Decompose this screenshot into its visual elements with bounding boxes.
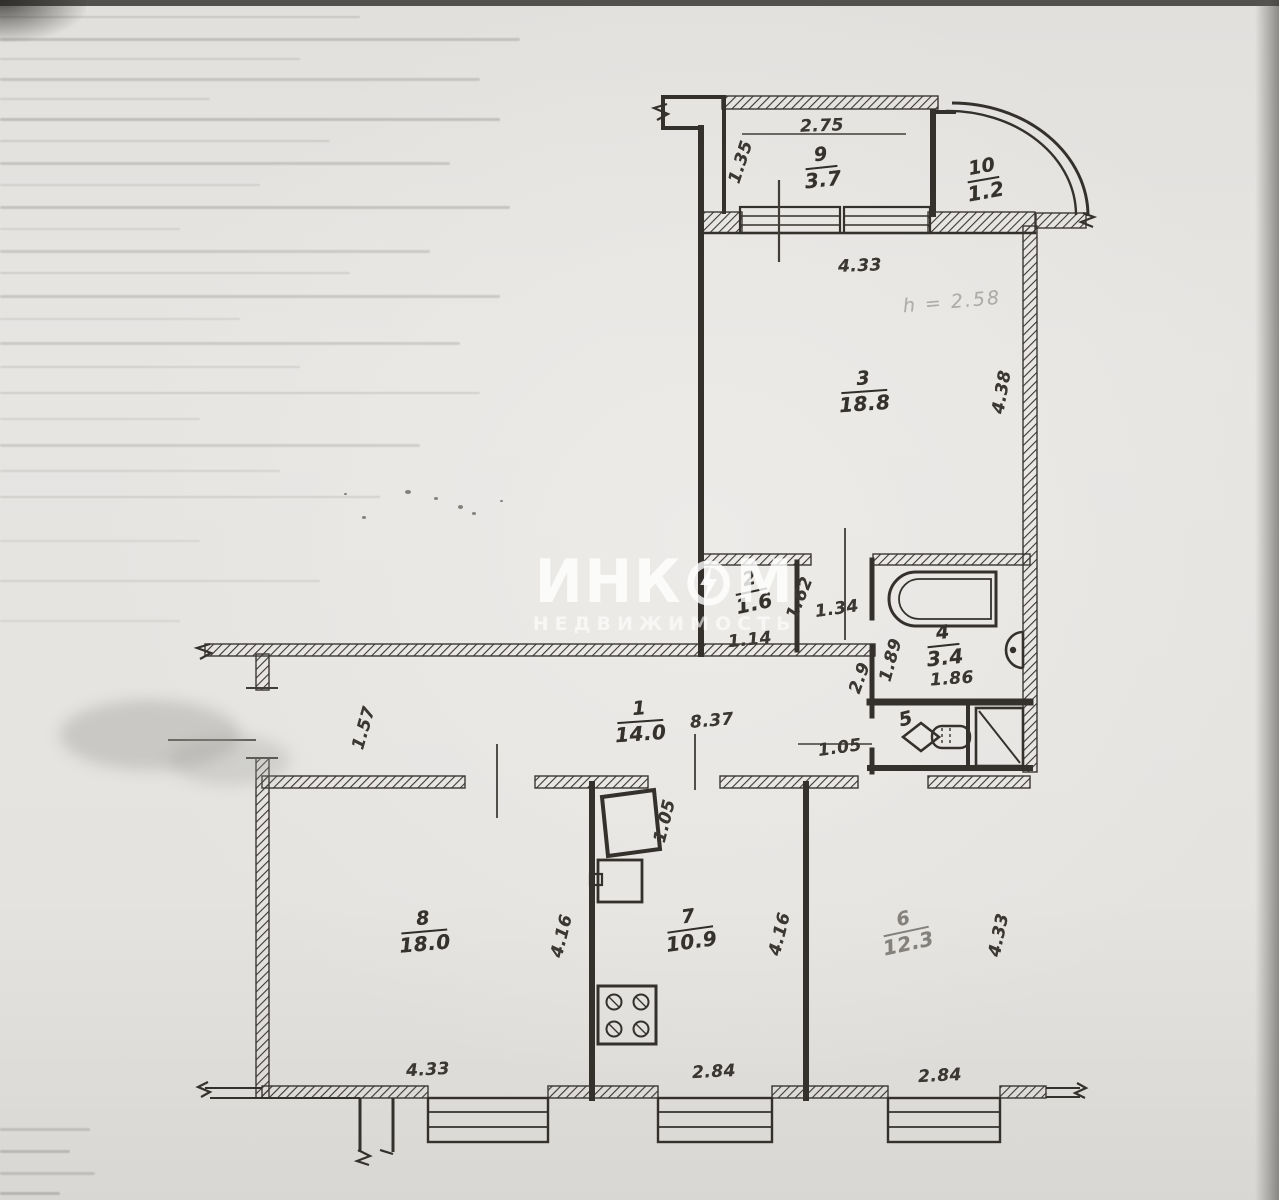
- room-label-5: 5: [897, 709, 915, 732]
- room-label-2: 21.6: [729, 566, 774, 618]
- room-label-6: 612.3: [876, 905, 936, 960]
- dimension-label: 4.33: [838, 255, 883, 277]
- dimension-label: 1.14: [727, 628, 773, 652]
- room-label-7: 710.9: [661, 904, 718, 956]
- dimension-label: 2.75: [800, 115, 845, 137]
- dimension-label: 4.16: [547, 912, 577, 959]
- scan-corner-blot: [0, 0, 86, 42]
- dimension-label: 1.86: [929, 667, 974, 690]
- dimension-label: 2.84: [692, 1061, 737, 1083]
- dimension-label: 2.84: [918, 1065, 963, 1087]
- dimension-label: 2.9: [845, 660, 875, 697]
- ceiling-height-note: h = 2.58: [902, 287, 1002, 317]
- floor-plan-scan: 93.7101.2318.821.643.45114.0818.0710.961…: [0, 0, 1279, 1200]
- dimension-label: 4.33: [985, 911, 1014, 958]
- room-label-9: 93.7: [801, 144, 842, 193]
- dimension-label: 4.33: [406, 1059, 451, 1081]
- dimension-label: 1.34: [814, 596, 860, 622]
- dimension-label: 1.62: [782, 574, 817, 622]
- room-label-8: 818.0: [396, 907, 451, 956]
- room-label-10: 101.2: [962, 155, 1006, 206]
- dimension-label: 4.16: [765, 910, 795, 957]
- dimension-label: 1.89: [876, 636, 907, 684]
- scan-top-edge: [0, 0, 1279, 6]
- dimension-label: 4.38: [988, 369, 1015, 416]
- dimension-label: 1.05: [650, 797, 680, 844]
- dimension-label: 1.35: [725, 138, 758, 186]
- plan-labels: 93.7101.2318.821.643.45114.0818.0710.961…: [0, 0, 1279, 1200]
- room-label-4: 43.4: [923, 622, 964, 671]
- scan-right-band: [1255, 0, 1279, 1200]
- room-label-1: 114.0: [613, 698, 667, 746]
- dimension-label: 1.05: [817, 735, 863, 761]
- room-label-3: 318.8: [837, 368, 891, 416]
- dimension-label: 8.37: [689, 709, 735, 733]
- dimension-label: 1.57: [348, 704, 379, 752]
